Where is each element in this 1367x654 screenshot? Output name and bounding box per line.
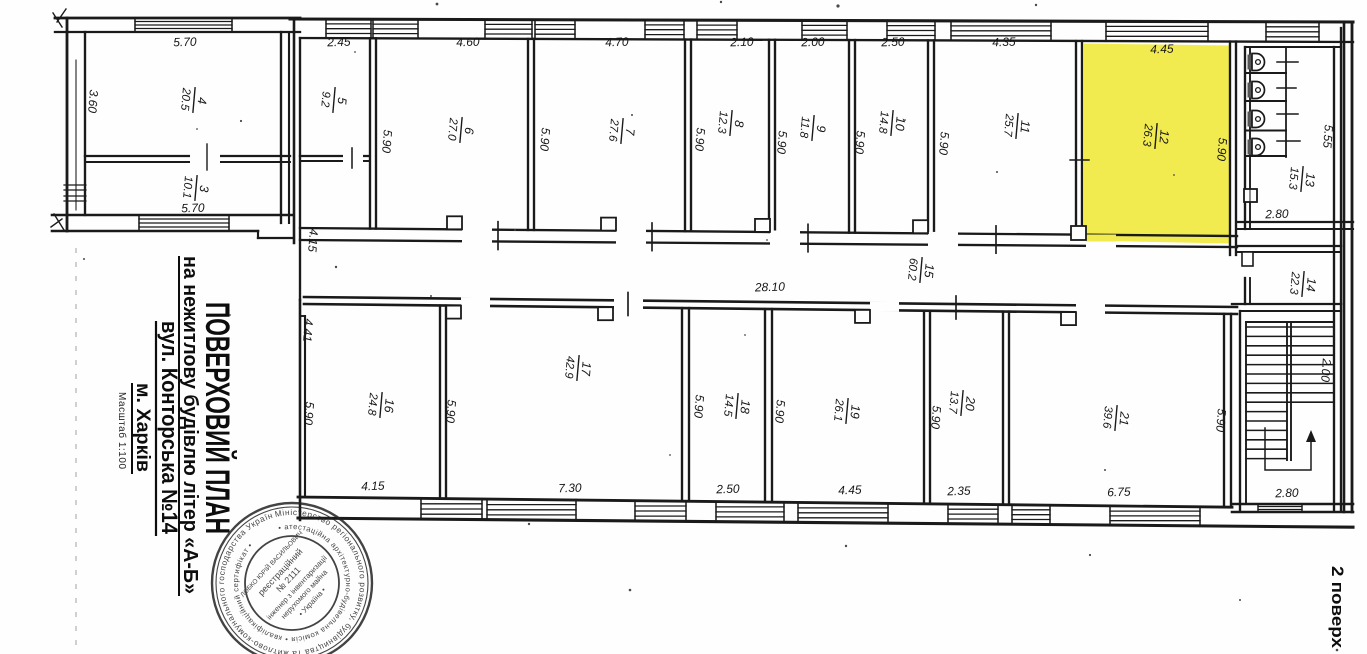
svg-text:14.5: 14.5 bbox=[721, 394, 735, 418]
svg-text:Масштаб 1:100: Масштаб 1:100 bbox=[116, 392, 128, 469]
svg-text:60.2: 60.2 bbox=[905, 258, 919, 282]
svg-text:10: 10 bbox=[892, 116, 907, 131]
svg-text:18: 18 bbox=[737, 399, 752, 414]
svg-text:3: 3 bbox=[197, 185, 212, 193]
svg-text:26.1: 26.1 bbox=[831, 398, 845, 422]
svg-text:5: 5 bbox=[335, 97, 350, 105]
svg-text:9.2: 9.2 bbox=[318, 91, 331, 109]
svg-text:27.0: 27.0 bbox=[445, 117, 459, 142]
svg-text:2 поверх: 2 поверх bbox=[1328, 566, 1347, 649]
svg-text:25.7: 25.7 bbox=[1001, 113, 1015, 138]
svg-text:24.8: 24.8 bbox=[365, 392, 379, 417]
svg-text:2.80: 2.80 bbox=[1274, 486, 1299, 501]
svg-text:2.10: 2.10 bbox=[729, 35, 754, 50]
svg-text:2.00: 2.00 bbox=[1318, 357, 1334, 383]
svg-text:9: 9 bbox=[814, 125, 829, 133]
svg-text:2.50: 2.50 bbox=[715, 482, 740, 497]
svg-text:12: 12 bbox=[1156, 129, 1171, 144]
svg-text:13.7: 13.7 bbox=[946, 391, 960, 415]
svg-text:28.10: 28.10 bbox=[754, 279, 786, 294]
svg-text:5.90: 5.90 bbox=[379, 129, 395, 154]
svg-text:вул. Конторська №14: вул. Конторська №14 bbox=[157, 321, 182, 535]
svg-text:15: 15 bbox=[921, 263, 936, 278]
svg-text:5.90: 5.90 bbox=[1214, 137, 1230, 162]
svg-text:15.3: 15.3 bbox=[1286, 167, 1300, 191]
svg-text:м. Харків: м. Харків bbox=[132, 383, 153, 472]
svg-text:5.90: 5.90 bbox=[691, 394, 707, 419]
svg-text:ПОВЕРХОВИЙ ПЛАН: ПОВЕРХОВИЙ ПЛАН bbox=[198, 302, 237, 534]
svg-text:20: 20 bbox=[962, 395, 977, 411]
svg-text:5.90: 5.90 bbox=[772, 399, 788, 424]
svg-text:2.50: 2.50 bbox=[880, 35, 905, 50]
svg-text:14.8: 14.8 bbox=[876, 111, 890, 135]
svg-text:4: 4 bbox=[195, 97, 210, 105]
svg-text:5.90: 5.90 bbox=[774, 130, 790, 155]
svg-text:39.6: 39.6 bbox=[1100, 406, 1114, 430]
svg-text:10.1: 10.1 bbox=[180, 176, 194, 199]
svg-text:2.35: 2.35 bbox=[946, 484, 971, 499]
svg-text:13: 13 bbox=[1302, 172, 1317, 187]
svg-text:5.90: 5.90 bbox=[1213, 408, 1229, 433]
svg-text:5.90: 5.90 bbox=[692, 127, 708, 152]
svg-text:17: 17 bbox=[578, 361, 593, 377]
svg-text:4.45: 4.45 bbox=[1150, 42, 1174, 57]
svg-text:5.55: 5.55 bbox=[1320, 124, 1336, 149]
svg-text:27.6: 27.6 bbox=[606, 118, 620, 143]
svg-text:5.70: 5.70 bbox=[181, 201, 205, 216]
svg-text:5.90: 5.90 bbox=[936, 131, 952, 156]
svg-text:4.45: 4.45 bbox=[838, 483, 862, 498]
svg-text:7.30: 7.30 bbox=[558, 481, 582, 496]
svg-text:8: 8 bbox=[732, 120, 747, 128]
svg-text:42.9: 42.9 bbox=[562, 356, 576, 380]
svg-text:21: 21 bbox=[1116, 410, 1131, 426]
svg-text:4.60: 4.60 bbox=[456, 35, 480, 50]
svg-text:5.90: 5.90 bbox=[537, 127, 553, 152]
svg-text:5.90: 5.90 bbox=[301, 401, 317, 426]
svg-text:4.15: 4.15 bbox=[305, 228, 321, 253]
svg-text:5.90: 5.90 bbox=[443, 399, 459, 424]
svg-text:5.90: 5.90 bbox=[928, 405, 944, 430]
svg-text:4.35: 4.35 bbox=[992, 35, 1016, 50]
svg-text:5.70: 5.70 bbox=[173, 35, 197, 50]
svg-text:6.75: 6.75 bbox=[1107, 485, 1131, 500]
svg-text:2.45: 2.45 bbox=[326, 35, 351, 50]
svg-text:14: 14 bbox=[1303, 277, 1318, 292]
svg-text:20.5: 20.5 bbox=[178, 87, 192, 112]
svg-text:4.15: 4.15 bbox=[361, 479, 385, 494]
svg-text:22.3: 22.3 bbox=[1287, 271, 1301, 296]
svg-text:4.70: 4.70 bbox=[605, 35, 629, 50]
svg-text:11: 11 bbox=[1017, 120, 1032, 134]
svg-text:16: 16 bbox=[381, 398, 396, 413]
svg-text:4.41: 4.41 bbox=[300, 318, 316, 342]
svg-text:2.80: 2.80 bbox=[1264, 207, 1289, 222]
svg-text:26.3: 26.3 bbox=[1140, 123, 1154, 148]
svg-text:12.3: 12.3 bbox=[715, 111, 729, 135]
svg-text:6: 6 bbox=[462, 127, 477, 135]
svg-text:19: 19 bbox=[847, 404, 862, 419]
svg-text:3.60: 3.60 bbox=[85, 89, 101, 114]
svg-text:2.00: 2.00 bbox=[800, 35, 825, 50]
svg-text:5.90: 5.90 bbox=[852, 130, 868, 155]
svg-text:11.8: 11.8 bbox=[797, 116, 811, 139]
